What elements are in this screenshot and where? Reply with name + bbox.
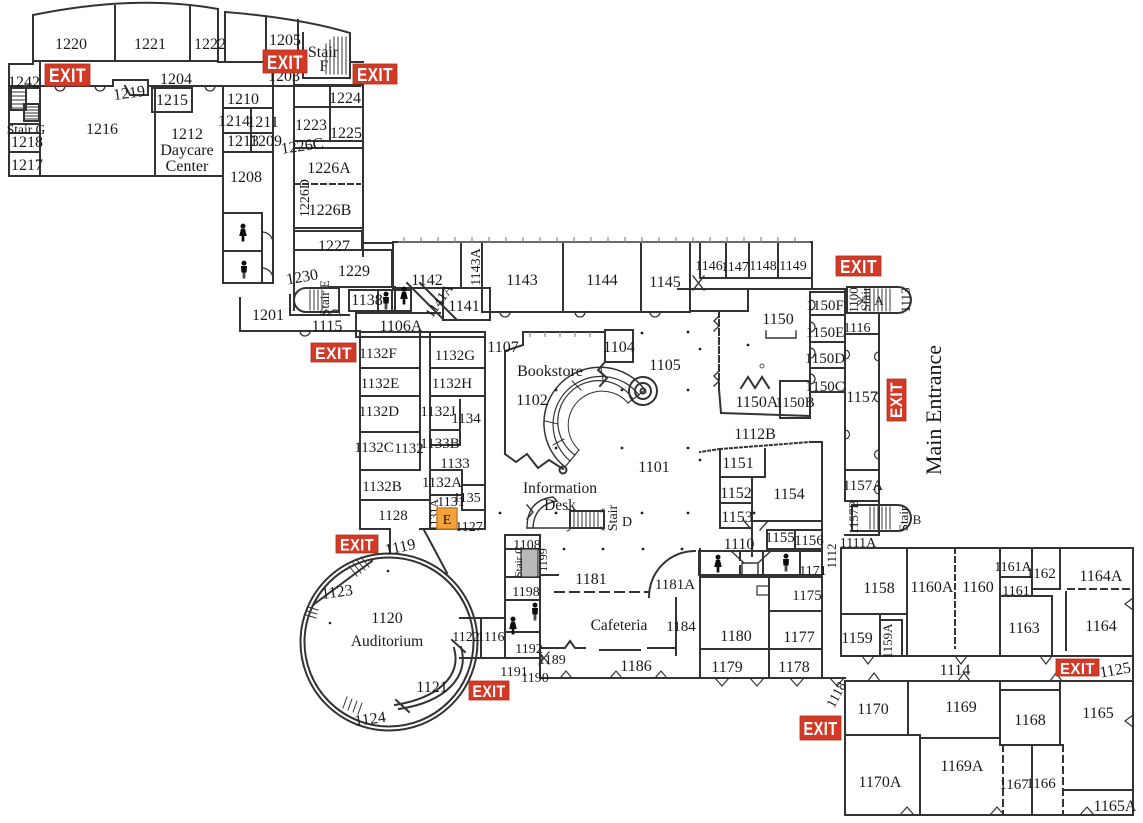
svg-text:1122: 1122 [452,630,479,645]
svg-text:1132F: 1132F [359,346,397,362]
svg-text:1167: 1167 [999,777,1029,793]
svg-text:1148: 1148 [749,259,776,274]
svg-text:Information: Information [523,480,597,497]
svg-text:Center: Center [166,158,209,175]
svg-text:1165: 1165 [1082,705,1113,722]
svg-text:A: A [874,293,884,308]
svg-text:Stair E: Stair E [317,280,332,316]
svg-text:1132D: 1132D [359,404,399,420]
svg-text:1225: 1225 [330,125,362,142]
svg-text:1169: 1169 [945,699,976,716]
svg-text:1210: 1210 [227,91,259,108]
svg-text:1226B: 1226B [309,202,352,219]
svg-text:1226A: 1226A [307,160,351,177]
svg-text:1128: 1128 [378,508,407,524]
svg-text:1132H: 1132H [432,376,472,392]
svg-text:1151: 1151 [722,455,753,472]
svg-text:1161: 1161 [1002,584,1029,599]
svg-text:1204: 1204 [160,71,192,88]
svg-text:1107: 1107 [487,339,518,356]
svg-text:1150: 1150 [762,311,793,328]
svg-text:1112B: 1112B [734,426,775,443]
svg-text:EXIT: EXIT [340,536,374,555]
svg-text:1156: 1156 [794,533,824,549]
svg-text:1181: 1181 [575,571,606,588]
svg-text:Daycare: Daycare [160,142,213,159]
svg-text:1132B: 1132B [362,479,401,495]
svg-text:1181A: 1181A [655,577,695,593]
svg-text:1133B: 1133B [420,436,459,452]
svg-text:1143: 1143 [506,272,537,289]
svg-text:1212: 1212 [171,126,203,143]
svg-text:1145: 1145 [649,274,680,291]
svg-text:1186: 1186 [620,658,651,675]
svg-text:EXIT: EXIT [887,382,906,418]
svg-text:Stair C: Stair C [513,547,525,578]
svg-text:1220: 1220 [55,36,87,53]
svg-text:1242: 1242 [8,74,40,91]
svg-text:1218: 1218 [11,134,43,151]
svg-text:1169A: 1169A [941,758,984,775]
svg-text:E: E [443,513,452,528]
svg-text:1134: 1134 [451,411,481,427]
svg-text:1164: 1164 [1085,618,1116,635]
svg-text:1154: 1154 [773,486,804,503]
svg-text:1144: 1144 [586,272,617,289]
svg-text:1106A: 1106A [380,318,423,335]
svg-text:1132A: 1132A [422,475,462,491]
svg-text:1164A: 1164A [1080,568,1123,585]
svg-text:1141: 1141 [448,298,479,315]
svg-text:B: B [913,512,922,527]
svg-text:1170A: 1170A [859,774,902,791]
svg-text:1171: 1171 [799,564,826,579]
svg-text:1104: 1104 [603,339,634,356]
svg-text:Desk: Desk [544,497,576,514]
svg-text:D: D [622,515,632,530]
svg-text:EXIT: EXIT [473,682,506,701]
svg-text:1226D: 1226D [298,179,313,217]
svg-text:1184: 1184 [666,619,696,635]
svg-text:EXIT: EXIT [315,344,352,363]
svg-text:1132C: 1132C [354,440,393,456]
svg-text:EXIT: EXIT [357,65,393,85]
svg-text:1147: 1147 [721,260,748,275]
svg-text:1215: 1215 [156,92,188,109]
svg-text:1159: 1159 [841,630,872,647]
svg-text:EXIT: EXIT [49,66,86,87]
svg-text:EXIT: EXIT [1060,661,1095,678]
svg-text:1221: 1221 [134,36,166,53]
svg-text:1157A: 1157A [843,478,883,494]
svg-text:1205: 1205 [269,32,301,49]
svg-text:1150B: 1150B [775,395,814,411]
svg-text:1162: 1162 [1026,566,1055,582]
svg-text:1111A: 1111A [840,536,877,551]
svg-text:1208: 1208 [230,169,262,186]
svg-text:1157: 1157 [846,389,877,406]
svg-text:1155: 1155 [765,530,794,546]
svg-text:1116: 1116 [478,630,505,645]
svg-text:1143A: 1143A [469,247,484,285]
svg-text:1160: 1160 [962,579,993,596]
svg-text:1157B: 1157B [846,500,861,535]
svg-text:1153: 1153 [721,509,752,526]
svg-text:1105: 1105 [649,357,680,374]
svg-text:Auditorium: Auditorium [351,633,423,650]
svg-text:EXIT: EXIT [840,257,877,277]
svg-text:1132G: 1132G [435,348,475,364]
svg-text:1190: 1190 [521,671,548,686]
svg-text:1102: 1102 [516,392,547,409]
svg-text:Stair: Stair [858,286,873,311]
svg-text:1216: 1216 [86,121,118,138]
svg-text:1120: 1120 [371,610,402,627]
svg-text:1146: 1146 [695,259,722,274]
svg-text:1222: 1222 [194,36,226,53]
svg-text:1201: 1201 [252,307,284,324]
svg-text:1150E: 1150E [806,325,845,341]
svg-text:Bookstore: Bookstore [517,363,583,380]
svg-text:1211: 1211 [247,114,278,131]
svg-text:1166: 1166 [1026,776,1056,792]
svg-text:1138: 1138 [351,292,382,309]
svg-text:EXIT: EXIT [804,719,838,739]
svg-text:1229: 1229 [338,263,370,280]
svg-text:Cafeteria: Cafeteria [591,617,648,634]
svg-text:1180: 1180 [720,628,751,645]
svg-text:1152: 1152 [720,485,751,502]
svg-text:1209: 1209 [250,133,282,150]
svg-text:1168: 1168 [1014,712,1045,729]
svg-text:1199: 1199 [536,548,550,572]
svg-text:1121: 1121 [416,679,447,696]
svg-text:1214: 1214 [218,113,250,130]
svg-text:1223: 1223 [295,117,327,134]
svg-text:1135: 1135 [453,491,480,506]
svg-text:1113: 1113 [898,287,913,312]
svg-text:1150C: 1150C [805,379,844,395]
svg-text:1127: 1127 [455,520,482,535]
svg-text:Stair: Stair [606,504,621,531]
svg-text:1160A: 1160A [911,579,954,596]
svg-text:1217: 1217 [11,157,43,174]
svg-text:1175: 1175 [792,588,821,604]
svg-text:1150D: 1150D [805,351,845,367]
svg-text:F: F [320,58,329,75]
svg-text:1115: 1115 [312,318,343,335]
svg-text:1170: 1170 [857,701,888,718]
svg-text:1149: 1149 [779,259,806,274]
svg-text:1179: 1179 [711,659,742,676]
svg-text:1150F: 1150F [806,298,844,314]
svg-text:1110: 1110 [724,536,755,553]
svg-text:1224: 1224 [329,90,361,107]
svg-text:1133: 1133 [440,456,469,472]
svg-text:1114: 1114 [940,662,971,679]
svg-text:1163: 1163 [1008,620,1039,637]
svg-text:1158: 1158 [863,580,894,597]
svg-text:Main Entrance: Main Entrance [921,345,946,475]
svg-text:1116: 1116 [844,321,871,336]
svg-text:1132E: 1132E [361,376,400,392]
svg-text:1178: 1178 [778,659,809,676]
svg-text:1159A: 1159A [880,623,895,659]
svg-text:1165A: 1165A [1094,798,1137,815]
svg-text:EXIT: EXIT [267,53,303,74]
svg-text:1198: 1198 [512,585,539,600]
svg-text:1101: 1101 [638,459,669,476]
svg-text:1189: 1189 [538,653,565,668]
svg-text:1142: 1142 [411,272,442,289]
svg-text:1227: 1227 [318,238,350,255]
svg-text:1177: 1177 [783,629,814,646]
svg-text:1150A: 1150A [736,394,779,411]
svg-text:Stair: Stair [896,506,911,531]
